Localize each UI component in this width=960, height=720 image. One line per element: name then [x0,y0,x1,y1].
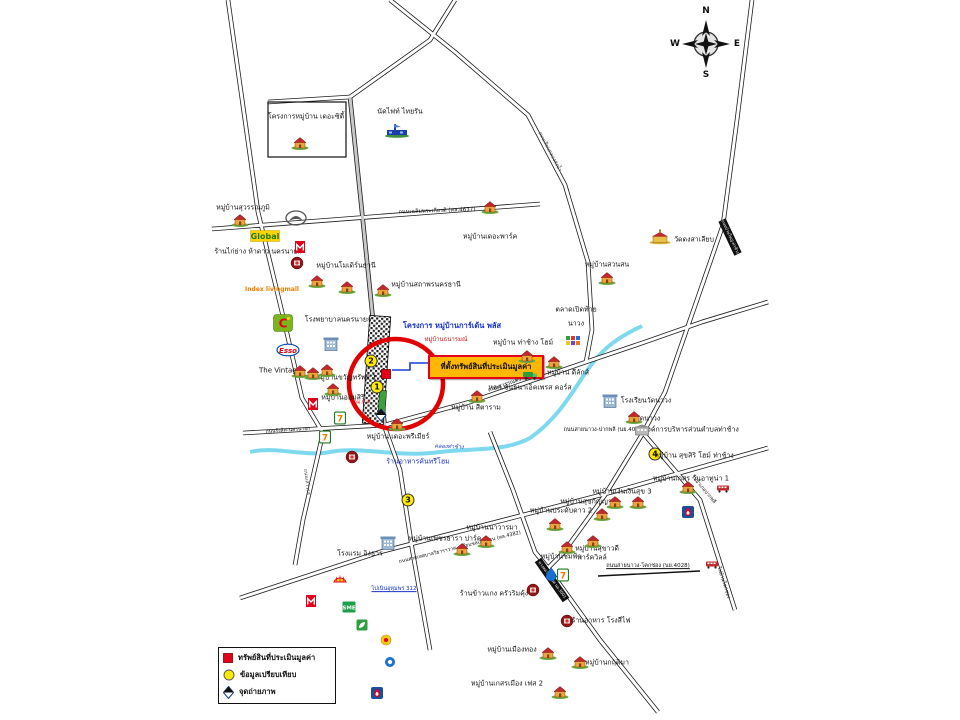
legend-property-icon [223,653,233,663]
label-the-park: หมู่บ้านเดอะพาร์ค [463,233,517,240]
label-thachang-home: หมู่บ้าน ท่าช้าง โฮม์ [493,339,553,346]
bus-icon-2 [706,561,719,570]
svg-text:Esso: Esso [279,347,297,355]
compass-n: N [702,6,710,16]
label-sathaporn: หมู่บ้านสถาพรนครธานี [391,281,460,288]
pradabdao-house-icon-2 [593,507,611,521]
comparable-marker-2: 2 [365,355,378,368]
sathaporn-house-icon [338,280,356,294]
label-school-nawong: โรงเรียนวัดนาวง [621,397,672,404]
chanthana-truck-icon [522,370,538,380]
legend-property-label: ทรัพย์สินที่ประเมินมูลค่า [238,652,315,664]
mazda-icon [285,210,307,226]
sme-bank-icon: SME [342,601,356,613]
map-legend: ทรัพย์สินที่ประเมินมูลค่า ข้อมูลเปรียบเท… [218,647,336,704]
the-city-house-icon [291,136,309,150]
shell-station-icon [333,572,347,584]
big-c-icon: C [273,314,293,332]
aomsiri-house-icon [324,382,342,396]
ngoenngoen-house-icon [629,495,647,509]
seven-eleven-icon-3: 7 [557,569,569,582]
ptt-station-icon-2 [682,506,695,519]
canal-label: คลองท่าช้าง [434,445,463,452]
highlight-circle [349,339,443,429]
yellow-logo-icon [381,635,392,646]
legend-row-comparable: ข้อมูลเปรียบเทียบ [223,669,331,681]
comparable-marker-1: 1 [371,381,384,394]
label-parkville: พาร์ควิลล์ [577,554,607,561]
legend-row-photo: จุดถ่ายภาพ [223,686,331,699]
wat-dong-temple-icon [649,230,671,245]
modern-thani-house-icon [308,274,326,288]
label-hotel: โรงแรม อิงธาร [337,550,383,557]
pradabdao-house-icon [546,517,564,531]
country-home-icon [346,451,359,464]
label-sitaram: หมู่บ้าน สีตาราม [451,404,501,411]
label-krittima: หมู่บ้านกฤติมา [585,659,629,666]
rongsifai-shop-icon [561,615,574,628]
sathaporn-house-icon-2 [374,283,392,297]
label-muangthong: หมู่บ้านเมืองทอง [487,646,536,653]
navarama-house-icon [477,534,495,548]
m-store-icon-3 [306,595,317,608]
compass-w: W [670,39,680,49]
seven-eleven-icon-2: 7 [319,431,331,444]
label-country-home: ร้านอาหารคันทรีโฮม [386,458,449,465]
comparable-marker-3: 3 [402,494,415,507]
compass-s: S [703,70,709,80]
label-market-line1: ตลาดเปิดท้าย [555,306,596,313]
road-4028-line [598,571,700,576]
compass-icon [672,6,740,78]
sitaram-house-icon [468,389,486,403]
global-house-icon: Global [250,230,280,242]
label-navarama: หมู่บ้านนาวารมา [466,524,517,531]
label-modern-thani: หมู่บ้านโมเดิร์นธานี [316,262,375,269]
market-icon [565,335,581,347]
label-rongsifai: ร้านอาหาร โรงสีไฟ [572,617,631,624]
label-sukkanya: หมู่บ้านสุขกัญญา [560,498,612,505]
label-pradabdao: หมู่บ้านประดับดาว 2 [530,507,592,514]
svg-text:Global: Global [251,232,280,241]
compass-rose: N S W E [672,6,740,78]
label-the-city: โครงการหมู่บ้าน เดอะซิตี้ [268,113,344,120]
callout-connector-line [392,363,428,370]
krittima-house-icon [571,655,589,669]
ptt-station-icon [371,687,384,700]
kesorn-muang-house-icon [551,685,569,699]
muangthong-house-icon [539,646,557,660]
label-deluxe: หมู่บ้าน ดีลักส์ [547,369,589,376]
suwannaphum-house-icon [231,213,249,227]
legend-row-property: ทรัพย์สินที่ประเมินมูลค่า [223,652,331,664]
road-label-to-noen: ไปเนินอุทุมพร 312 [371,587,416,593]
label-hospital: โรงพยาบาลนครนายก [305,316,372,323]
hotel-building-icon [380,536,396,551]
svg-text:7: 7 [322,434,328,444]
svg-text:7: 7 [337,415,343,425]
canal-river [250,326,642,454]
premier-house-icon [388,417,406,431]
label-suwannaphum: หมู่บ้านสุวรรณภูมิ [216,204,270,211]
legend-photo-icon [223,686,234,699]
esso-station-icon: Esso [276,344,300,357]
kesorn-house-icon [679,480,697,494]
sukkanya-house-icon [606,495,624,509]
label-suksiri: หมู่บ้าน สุขสิริ โฮม์ ท่าช้าง [654,452,733,459]
label-abt-thachang: องค์การบริหารส่วนตำบลท่าช้าง [643,426,739,433]
chomfah-house-icon [558,540,576,554]
label-kaiyang: ร้านไก่ย่าง ห้าดาว นครนายก [214,248,301,255]
waterworks-icon [546,567,557,581]
label-wat-dong: วัดดงสาเลียบ [674,236,714,243]
label-khaokang: ร้านข้าวแกง ครัวริมคุ้ง [460,590,528,597]
school-nawong-icon [602,394,618,409]
khaokang-shop-icon [527,584,540,597]
property-square-marker [381,369,391,379]
label-nadfight: นัดไฟท์ ไทยรัน [377,108,422,115]
label-chanthana: หจก.ชันธนาเอ็คเพรส คอร์ส [488,384,571,391]
svg-text:SME: SME [342,606,355,612]
legend-comparable-icon [223,669,235,681]
kaiyang-shop-icon [291,257,304,270]
road-label-nawong-pakphli: ถนนสายนาวง-ปากพลี (นย.4026) [564,428,645,434]
deluxe-house-icon [545,355,563,369]
the-park-house-icon [481,200,499,214]
abt-thachang-building-icon [635,424,650,436]
svg-text:C: C [279,317,288,331]
label-suan-son: หมู่บ้านสวนสน [585,261,629,268]
m-store-icon [295,241,306,254]
nadfight-icon [384,122,410,138]
bus-icon [717,485,730,494]
photo-point-marker [376,409,387,422]
thachang-home-house-icon [518,349,536,363]
project-name-label: โครงการ หมู่บ้านการ์เด้น พลัส [403,322,501,330]
label-chomfah: หมู่บ้านชมฟ้า [541,553,582,560]
blue-logo-icon [385,657,396,668]
hospital-building-icon [323,337,339,352]
sukhavadee-house-icon [584,534,602,548]
leaf-logo-icon [356,619,368,631]
project-subname-label: หมู่บ้านธนารมณ์ [424,337,467,343]
legend-photo-label: จุดถ่ายภาพ [239,686,276,698]
label-kesorn-muang: หมู่บ้านเกสรเมือง เฟส 2 [471,680,543,687]
compass-e: E [734,39,740,49]
label-premier: หมู่บ้าน เดอะพรีเมียร์ [367,433,430,440]
wat-nawong-house-icon [625,410,643,424]
phettara-house-icon [453,542,471,556]
svg-text:7: 7 [560,572,566,582]
suan-son-house-icon [598,271,616,285]
seven-eleven-icon: 7 [334,412,346,425]
khwansap-house-icon [318,363,336,377]
map-canvas: N S W E ถนนเฉลิมพระเกียรติ (ทล.4637) ถนน… [0,0,960,720]
m-store-icon-2 [308,398,319,411]
legend-comparable-label: ข้อมูลเปรียบเทียบ [240,669,296,681]
label-market-line2: นาวง [568,320,584,327]
label-index-living-mall: Index livingmall [245,287,299,293]
road-label-nawong-khokchong: ถนนสายนาวง-โคกช่อง (นย.4028) [606,564,690,570]
